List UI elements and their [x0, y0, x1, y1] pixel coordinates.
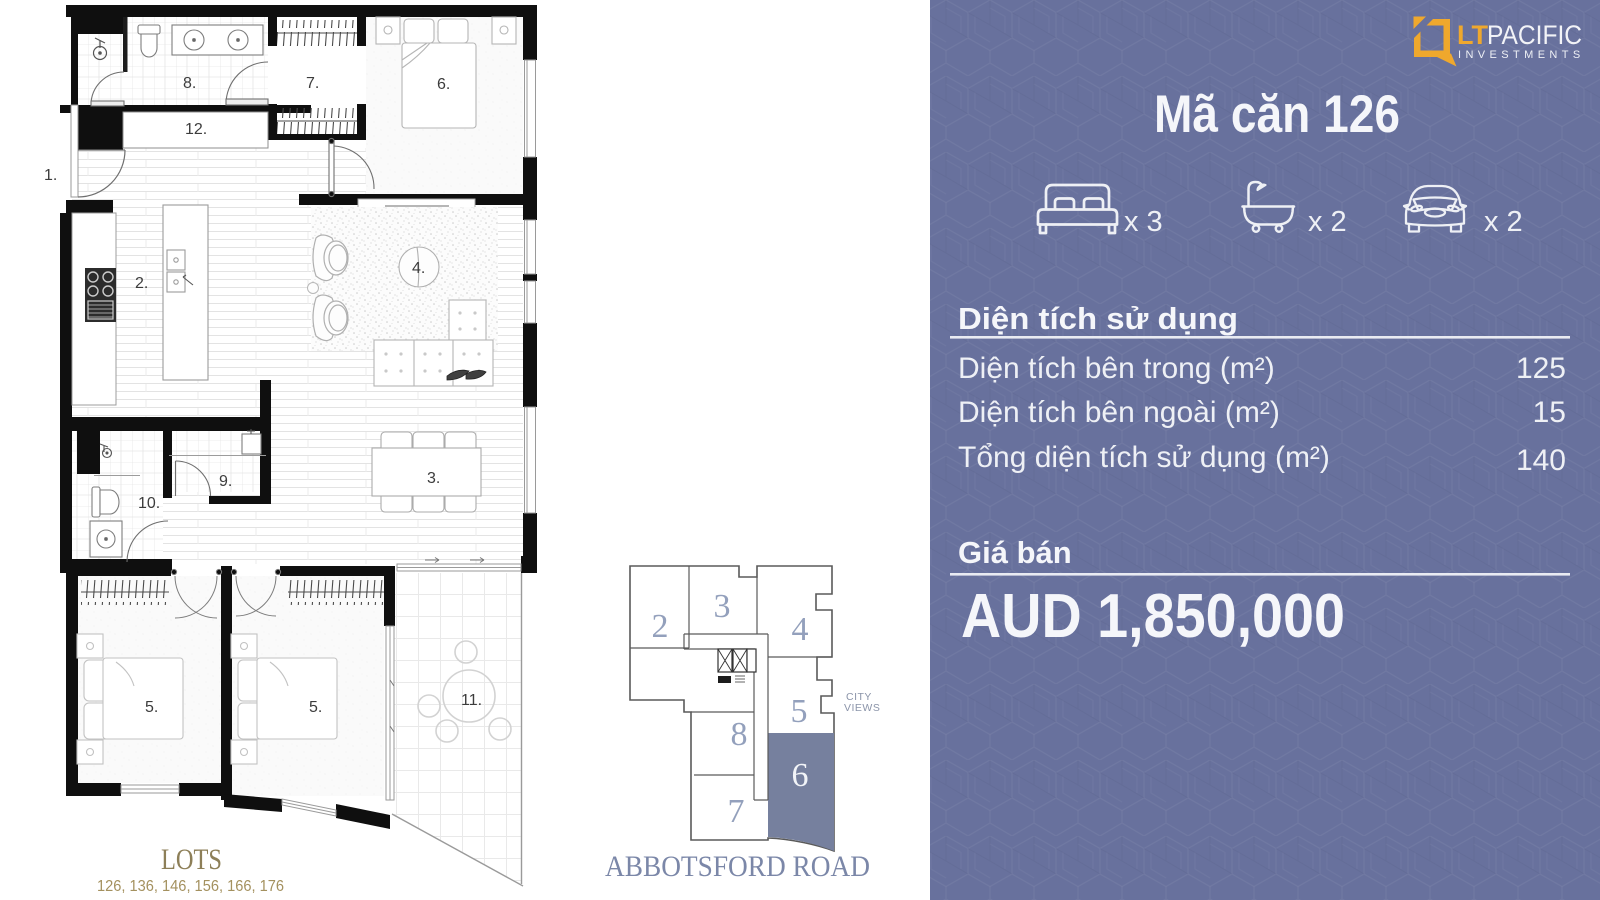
svg-text:x 3: x 3 [1124, 206, 1163, 238]
svg-text:Mã căn 126: Mã căn 126 [1154, 85, 1400, 144]
svg-text:125: 125 [1516, 352, 1566, 385]
svg-text:5: 5 [791, 693, 808, 730]
svg-text:Diện tích bên trong (m²): Diện tích bên trong (m²) [958, 352, 1275, 385]
svg-text:126, 136, 146, 156, 166, 176: 126, 136, 146, 156, 166, 176 [97, 878, 284, 895]
svg-text:Diện tích bên ngoài (m²): Diện tích bên ngoài (m²) [958, 396, 1280, 429]
svg-text:x 2: x 2 [1308, 206, 1347, 238]
svg-text:3.: 3. [427, 470, 440, 487]
svg-text:140: 140 [1516, 444, 1566, 477]
svg-text:Tổng diện tích sử dụng (m²): Tổng diện tích sử dụng (m²) [958, 441, 1330, 474]
svg-text:8.: 8. [183, 75, 196, 92]
svg-text:3: 3 [714, 588, 731, 625]
svg-text:ABBOTSFORD ROAD: ABBOTSFORD ROAD [605, 850, 870, 883]
svg-text:8: 8 [731, 716, 748, 753]
svg-text:4: 4 [792, 611, 809, 648]
svg-text:2: 2 [652, 608, 669, 645]
svg-text:2.: 2. [135, 275, 148, 292]
svg-text:INVESTMENTS: INVESTMENTS [1458, 49, 1585, 61]
svg-text:PACIFIC: PACIFIC [1487, 20, 1582, 50]
svg-text:4.: 4. [412, 260, 425, 277]
svg-text:15: 15 [1533, 396, 1566, 429]
svg-text:9.: 9. [219, 473, 232, 490]
svg-text:x 2: x 2 [1484, 206, 1523, 238]
svg-text:Diện tích sử dụng: Diện tích sử dụng [958, 301, 1238, 336]
svg-text:5.: 5. [145, 699, 158, 716]
svg-text:VIEWS: VIEWS [844, 702, 880, 714]
svg-text:7: 7 [728, 793, 745, 830]
svg-text:10.: 10. [138, 495, 160, 512]
svg-text:6: 6 [792, 757, 809, 794]
svg-text:AUD 1,850,000: AUD 1,850,000 [961, 582, 1345, 651]
svg-text:Giá bán: Giá bán [958, 535, 1072, 570]
svg-text:5.: 5. [309, 699, 322, 716]
svg-text:6.: 6. [437, 76, 450, 93]
svg-text:LOTS: LOTS [161, 843, 222, 876]
svg-text:11.: 11. [461, 692, 482, 709]
svg-text:1.: 1. [44, 167, 57, 184]
svg-text:LT: LT [1457, 20, 1488, 50]
svg-text:7.: 7. [306, 75, 319, 92]
svg-text:12.: 12. [185, 121, 207, 138]
